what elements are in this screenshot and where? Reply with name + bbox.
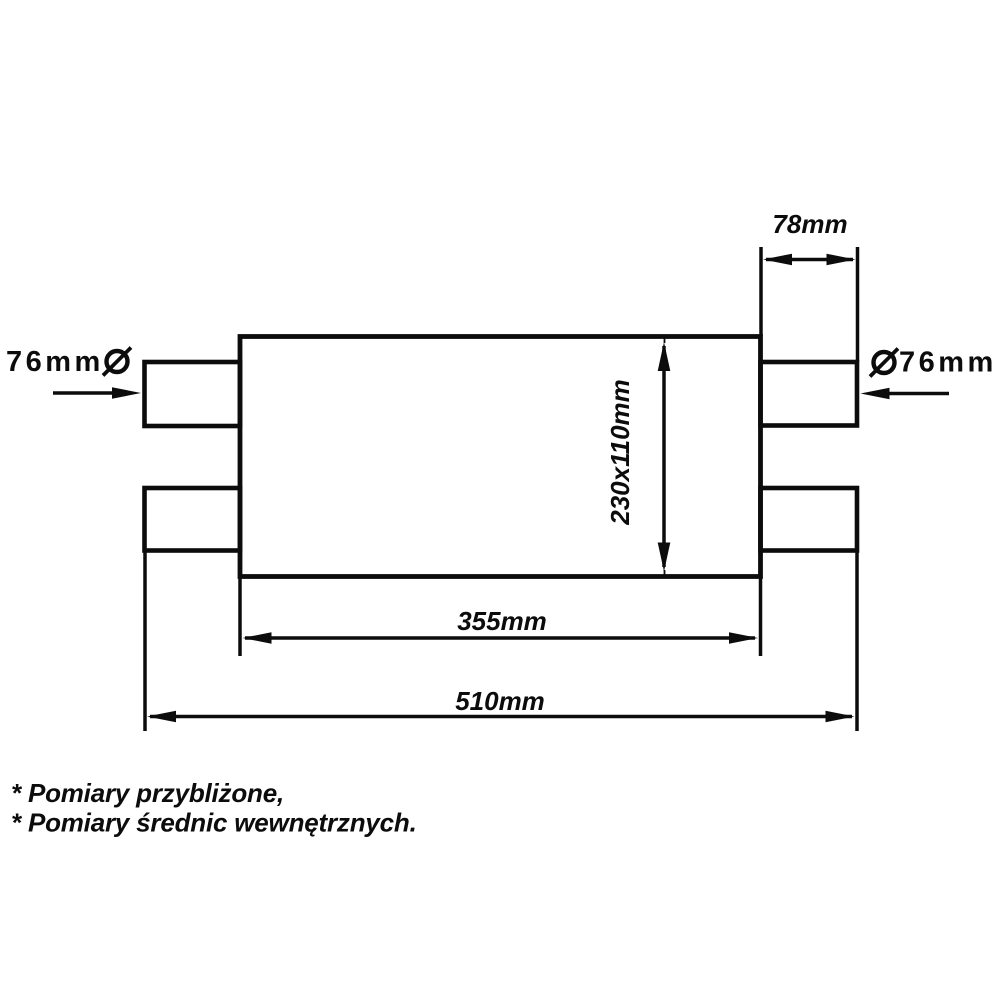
svg-text:* Pomiary średnic wewnętrznych: * Pomiary średnic wewnętrznych. [11, 808, 417, 838]
svg-text:76mm: 76mm [6, 346, 104, 378]
svg-text:510mm: 510mm [455, 686, 545, 716]
svg-text:230x110mm: 230x110mm [605, 379, 635, 526]
svg-text:78mm: 78mm [772, 209, 847, 239]
svg-text:355mm: 355mm [457, 606, 547, 636]
svg-text:76mm: 76mm [899, 347, 997, 379]
svg-text:* Pomiary przybliżone,: * Pomiary przybliżone, [11, 778, 284, 808]
